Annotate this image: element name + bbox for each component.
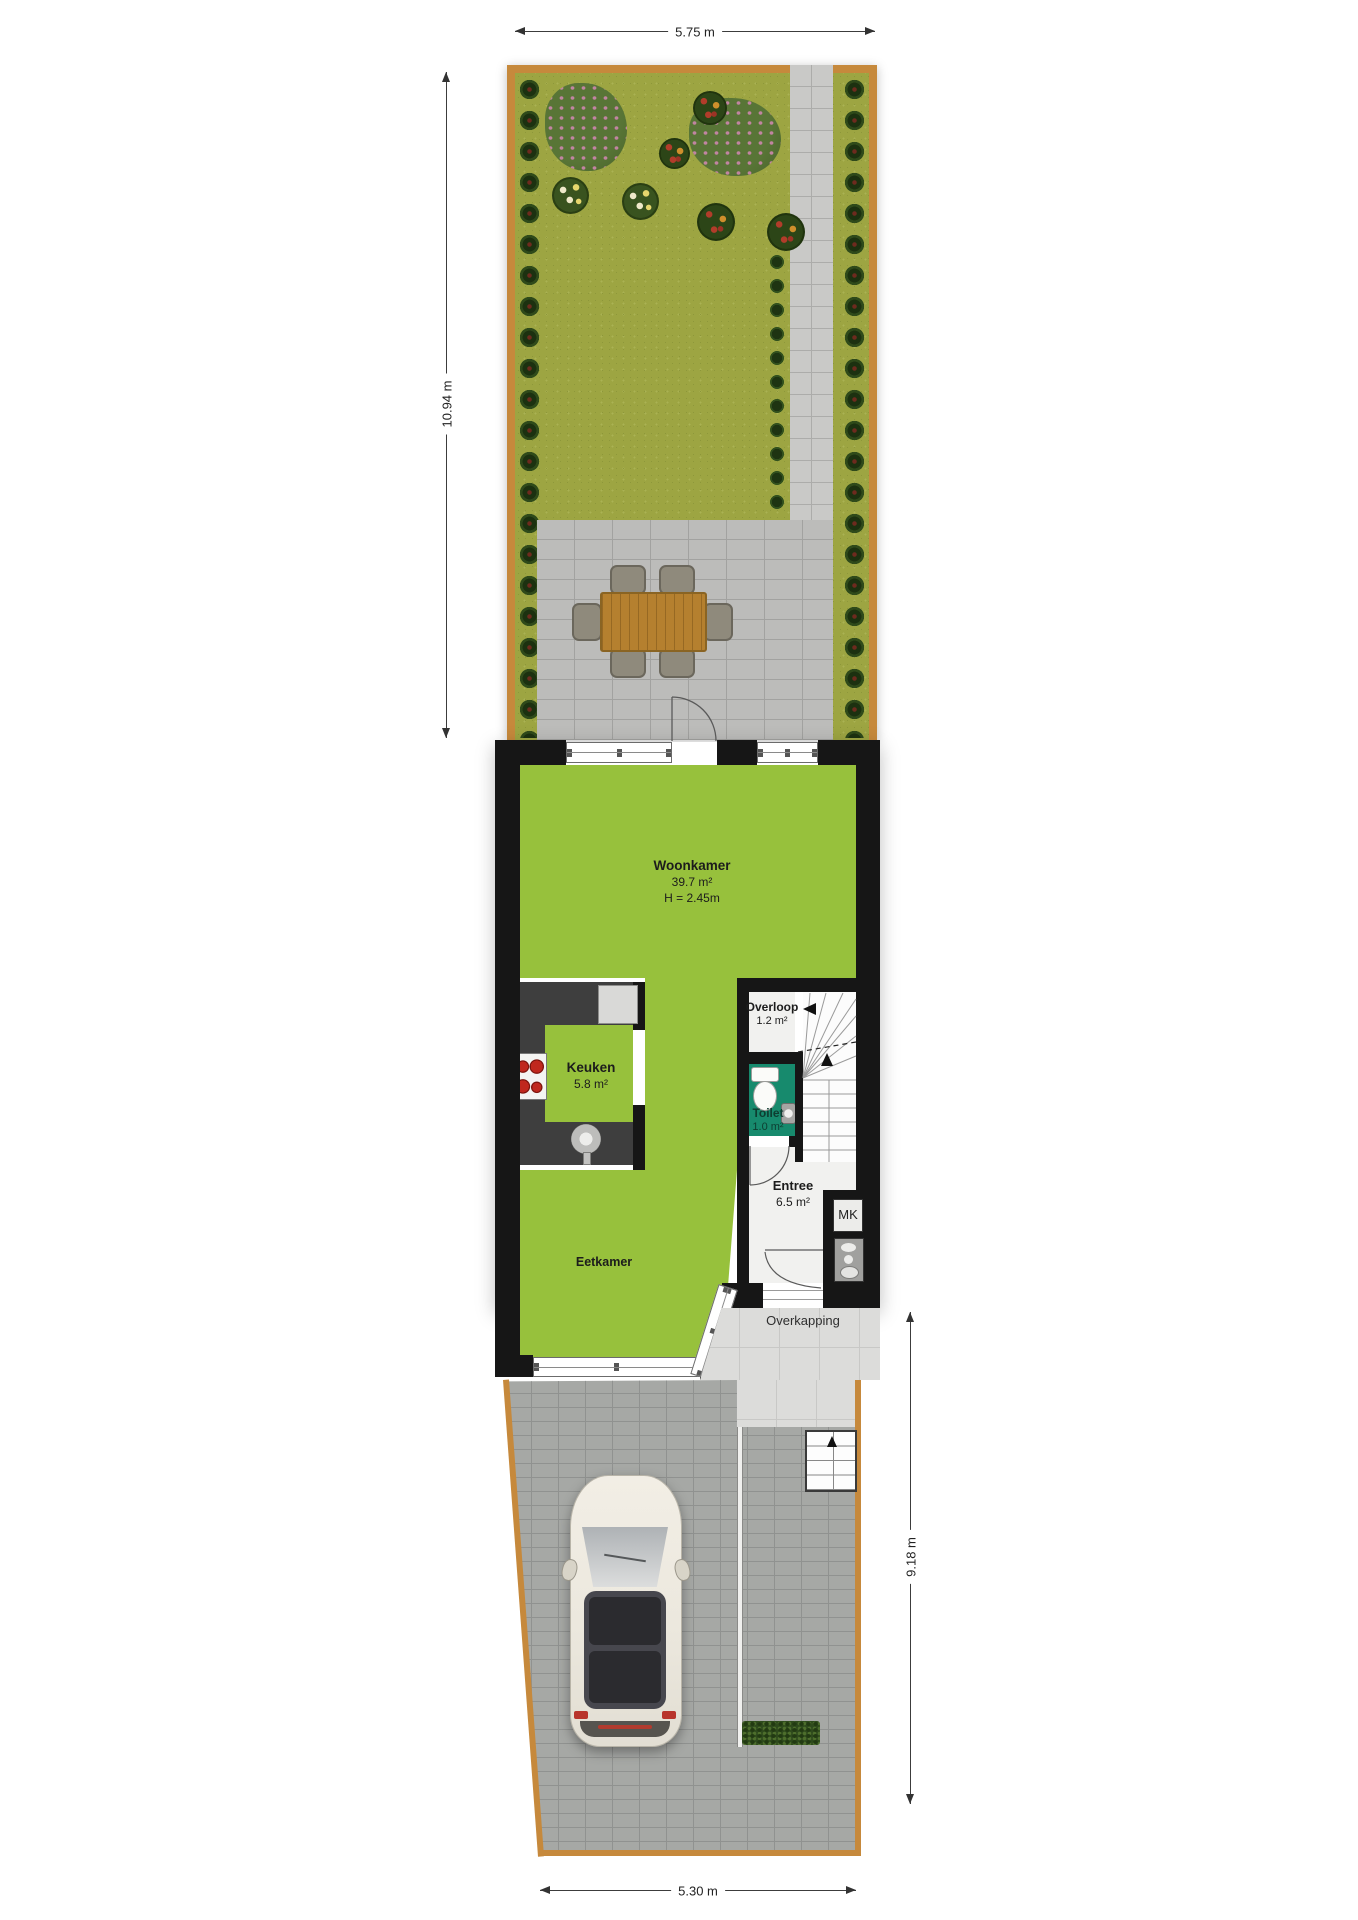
- flowering-shrub: [659, 138, 690, 169]
- hedge-right: [840, 74, 869, 738]
- garden-chair: [703, 603, 733, 641]
- flowering-shrub: [767, 213, 805, 251]
- dimension-bottom: 5.30 m: [671, 1883, 725, 1900]
- up-arrow-icon: [827, 1436, 837, 1447]
- overkapping-area: [737, 1380, 857, 1427]
- back-garden: [507, 65, 877, 740]
- flowering-shrub: [622, 183, 659, 220]
- room-label-toilet: Toilet 1.0 m²: [752, 1105, 783, 1134]
- label-overkapping: Overkapping: [766, 1313, 840, 1329]
- dimension-top: 5.75 m: [668, 24, 722, 41]
- dim-arrow: [540, 1886, 550, 1894]
- room-label-woonkamer: Woonkamer 39.7 m² H = 2.45m: [653, 858, 730, 906]
- car-rear-window: [589, 1651, 661, 1703]
- dim-arrow: [846, 1886, 856, 1894]
- flowering-shrub: [693, 91, 727, 125]
- dim-arrow: [906, 1312, 914, 1322]
- room-label-overloop: Overloop 1.2 m²: [746, 999, 799, 1028]
- hedge-strip: [742, 1721, 820, 1745]
- dim-arrow: [906, 1794, 914, 1804]
- dimension-right: 9.18 m: [903, 1530, 920, 1584]
- car-brake-light: [598, 1725, 652, 1729]
- room-label-eetkamer: Eetkamer: [576, 1254, 632, 1270]
- plan-linework: [495, 690, 885, 1390]
- room-label-entree: Entree 6.5 m²: [773, 1178, 813, 1210]
- garden-path: [790, 65, 833, 522]
- garden-chair: [610, 565, 646, 595]
- car-sunroof: [589, 1597, 661, 1645]
- garden-chair: [659, 565, 695, 595]
- flowering-shrub: [697, 203, 735, 241]
- garden-chair: [572, 603, 602, 641]
- dim-arrow: [442, 72, 450, 82]
- shrub-row: [768, 250, 786, 512]
- room-label-keuken: Keuken 5.8 m²: [567, 1060, 616, 1092]
- floorplan-canvas: MK: [0, 0, 1358, 1920]
- garden-chair: [610, 648, 646, 678]
- car-wiper: [604, 1554, 646, 1563]
- car-rear-bumper: [580, 1721, 670, 1737]
- boundary-fence-line: [737, 1427, 743, 1747]
- dimension-left: 10.94 m: [439, 374, 456, 435]
- dim-arrow: [442, 728, 450, 738]
- dining-table: [600, 592, 707, 652]
- dim-arrow: [515, 27, 525, 35]
- flowering-shrub: [552, 177, 589, 214]
- car-taillight: [574, 1711, 588, 1719]
- car-taillight: [662, 1711, 676, 1719]
- car-roof: [584, 1591, 666, 1709]
- fence-bottom: [538, 1850, 857, 1856]
- entrance-steps: [805, 1430, 857, 1492]
- garden-chair: [659, 648, 695, 678]
- car: [566, 1473, 684, 1749]
- car-windshield: [582, 1527, 668, 1587]
- dim-arrow: [865, 27, 875, 35]
